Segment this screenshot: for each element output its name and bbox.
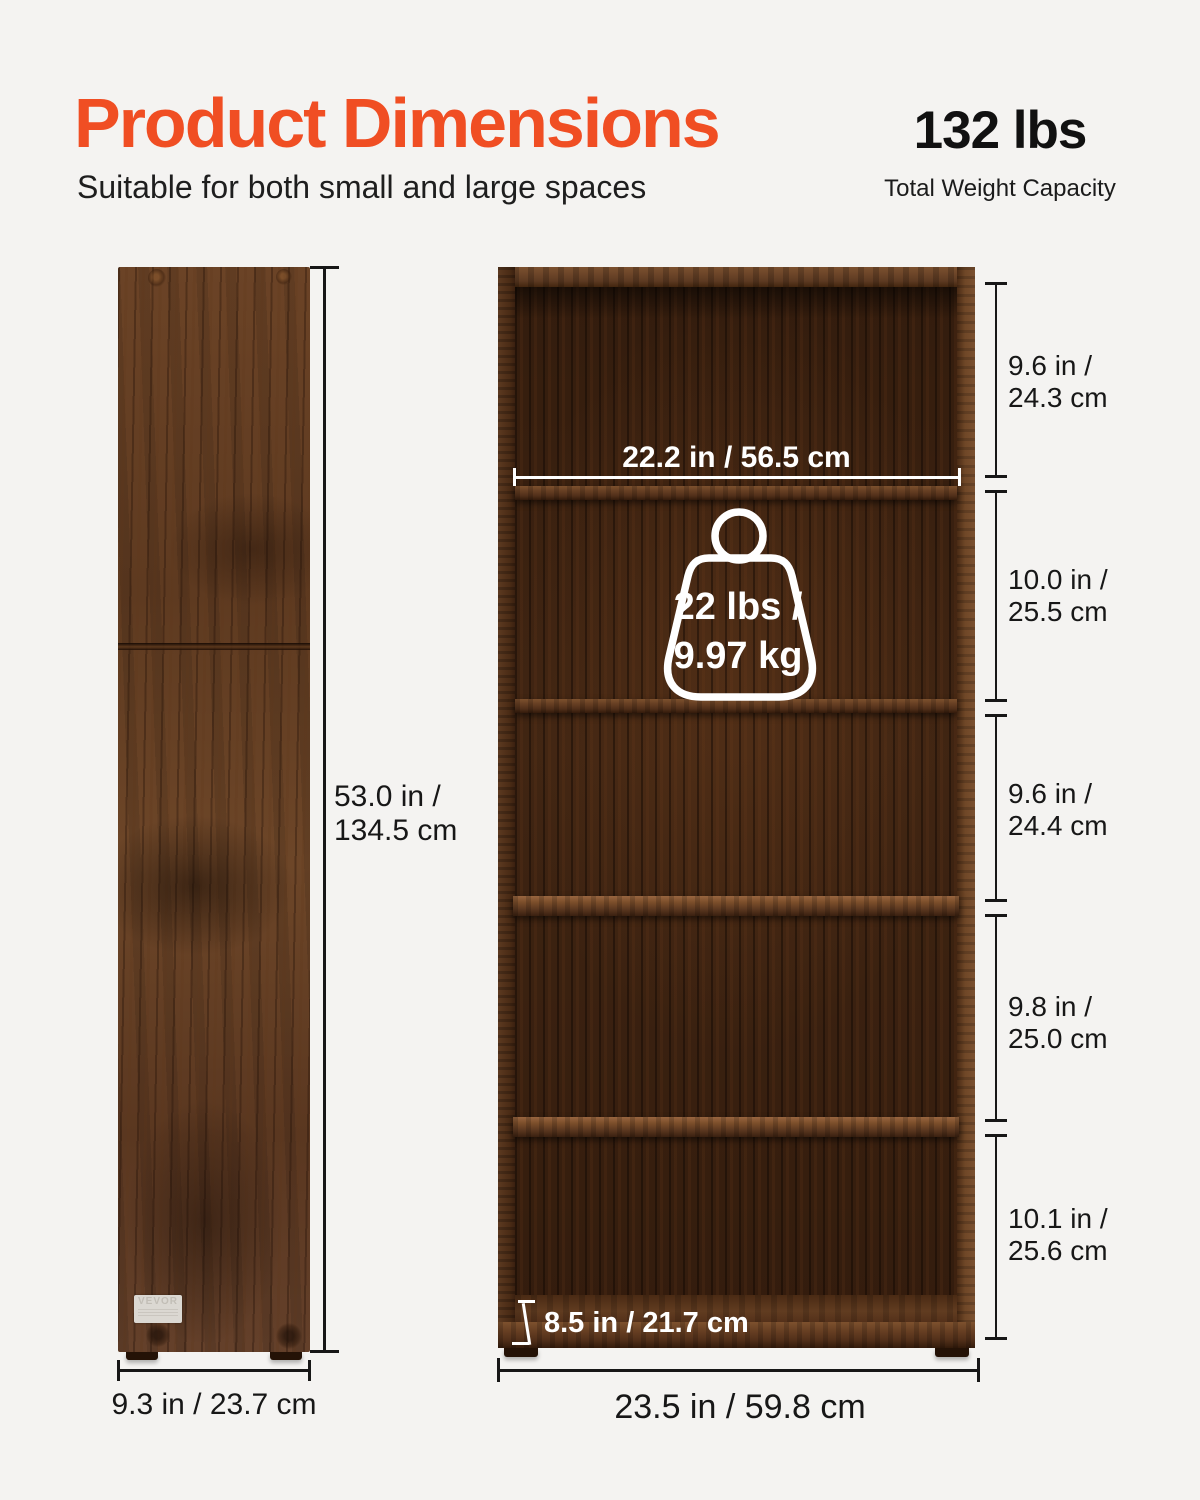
shelf-dim-tick	[985, 282, 1007, 285]
wood-knot	[276, 1323, 302, 1349]
depth-dimension-tick	[512, 1342, 529, 1345]
shelf-dim-tick	[985, 490, 1007, 493]
shelf-capacity-label: 22 lbs / 9.97 kg	[628, 583, 848, 681]
side-width-dimension-label: 9.3 in / 23.7 cm	[39, 1388, 389, 1422]
shelf-dim-line-5	[995, 1136, 997, 1339]
bookcase-foot	[935, 1348, 969, 1357]
front-width-dimension-tick	[497, 1358, 500, 1382]
front-width-dimension-label: 23.5 in / 59.8 cm	[490, 1390, 990, 1424]
inner-width-dimension-label: 22.2 in / 56.5 cm	[498, 441, 975, 475]
panel-seam	[118, 643, 310, 650]
shelf-dim-tick	[985, 714, 1007, 717]
shelf-dim-tick	[985, 1337, 1007, 1340]
page-subtitle: Suitable for both small and large spaces	[77, 170, 646, 205]
sticker-fine-print	[138, 1309, 178, 1317]
shelf-dim-tick	[985, 1119, 1007, 1122]
shelf-board-3	[513, 896, 959, 916]
side-width-dimension-tick	[117, 1360, 120, 1381]
shelf-dim-line-2	[995, 492, 997, 701]
shelf-dim-tick	[985, 1134, 1007, 1137]
front-width-dimension-line	[498, 1369, 980, 1372]
bookcase-foot	[504, 1348, 538, 1357]
shelf-dim-line-4	[995, 916, 997, 1121]
shelf-dim-line-3	[995, 716, 997, 901]
shelf-dim-label-1: 9.6 in / 24.3 cm	[1008, 350, 1108, 414]
shelf-board-1	[515, 486, 957, 500]
inner-width-dimension-tick	[513, 468, 516, 486]
brand-label: VEVOR	[134, 1295, 182, 1309]
side-width-dimension-tick	[308, 1360, 311, 1381]
cam-hole-icon	[276, 269, 292, 285]
depth-dimension-label: 8.5 in / 21.7 cm	[544, 1307, 749, 1340]
left-side-board	[498, 267, 515, 1348]
shelf-dim-tick	[985, 899, 1007, 902]
height-dimension-tick	[310, 266, 339, 269]
product-dimensions-infographic: Product Dimensions Suitable for both sma…	[0, 0, 1200, 1500]
wood-knot	[146, 1323, 170, 1347]
inner-width-dimension-tick	[958, 468, 961, 486]
panel-foot	[126, 1352, 158, 1360]
shelf-board-4	[513, 1117, 959, 1137]
inner-width-dimension-line	[514, 476, 960, 479]
top-board	[498, 267, 975, 287]
cam-hole-icon	[148, 269, 166, 287]
total-weight-value: 132 lbs	[860, 104, 1140, 157]
side-panel-image: VEVOR	[118, 267, 310, 1352]
shelf-dim-label-3: 9.6 in / 24.4 cm	[1008, 778, 1108, 842]
brand-sticker: VEVOR	[134, 1295, 182, 1323]
shelf-dim-tick	[985, 914, 1007, 917]
shelf-dim-label-5: 10.1 in / 25.6 cm	[1008, 1203, 1108, 1267]
height-dimension-label: 53.0 in / 134.5 cm	[334, 780, 457, 848]
shelf-dim-tick	[985, 699, 1007, 702]
side-width-dimension-line	[118, 1369, 311, 1372]
front-width-dimension-tick	[977, 1358, 980, 1382]
shelf-dim-tick	[985, 475, 1007, 478]
shelf-dim-label-4: 9.8 in / 25.0 cm	[1008, 991, 1108, 1055]
total-weight-caption: Total Weight Capacity	[860, 175, 1140, 203]
panel-foot	[270, 1352, 302, 1360]
page-title: Product Dimensions	[74, 88, 719, 158]
shelf-dim-label-2: 10.0 in / 25.5 cm	[1008, 564, 1108, 628]
total-weight-block: 132 lbs Total Weight Capacity	[860, 104, 1140, 203]
depth-dimension-tick	[518, 1300, 535, 1303]
shelf-dim-line-1	[995, 284, 997, 477]
bookcase-front-image: 22.2 in / 56.5 cm 22 lbs / 9.97 kg 8.5 i…	[498, 267, 975, 1352]
height-dimension-tick	[310, 1350, 339, 1353]
right-side-board	[957, 267, 975, 1348]
height-dimension-line	[323, 268, 326, 1352]
